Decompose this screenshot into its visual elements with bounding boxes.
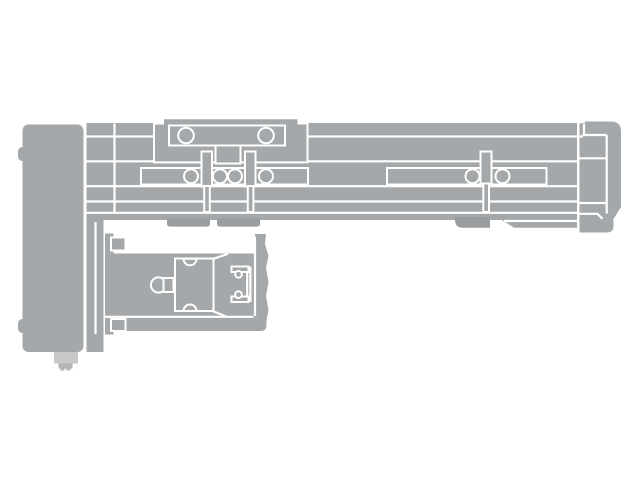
gearbox-notch-top: [184, 259, 197, 266]
connector-nub-tooth-right: [67, 369, 71, 371]
connector-foot: [54, 352, 78, 364]
carriage-post-left-lower: [204, 186, 210, 212]
beam-post-right-lower: [483, 184, 489, 213]
gearbox-notch-bottom: [184, 305, 197, 311]
gearbox-block: [175, 259, 214, 312]
carriage-post-right: [245, 152, 256, 187]
bearing-circle: [213, 169, 227, 183]
connector-nub-tooth-left: [61, 369, 65, 371]
carriage-tongue: [216, 146, 241, 164]
flange-screw-bottom: [235, 291, 242, 298]
carriage-post-right-lower: [248, 186, 254, 212]
actuator-illustration-page: [0, 0, 640, 484]
motor-block: [23, 125, 84, 353]
bracket-clamp-bottom: [111, 319, 126, 331]
flange-screw-top: [235, 271, 242, 278]
carriage-bolt-hole-left: [178, 128, 194, 144]
bearing-circle: [466, 169, 480, 183]
bracket-clamp-top: [111, 238, 126, 251]
bearing-circle: [496, 169, 510, 183]
wiper-tab-left: [167, 219, 210, 227]
connector-nub-body: [59, 364, 73, 369]
beam-post-right: [481, 152, 492, 185]
actuator-line-drawing: [0, 0, 640, 484]
motor-shaft-key: [164, 278, 174, 292]
bearing-circle: [259, 169, 273, 183]
hook-tab: [455, 217, 490, 228]
carriage-post-left: [202, 152, 213, 187]
carriage-bolt-hole-right: [258, 128, 274, 144]
bearing-circle: [184, 169, 198, 183]
bearing-circle: [228, 169, 242, 183]
wiper-tab-right: [217, 219, 260, 227]
